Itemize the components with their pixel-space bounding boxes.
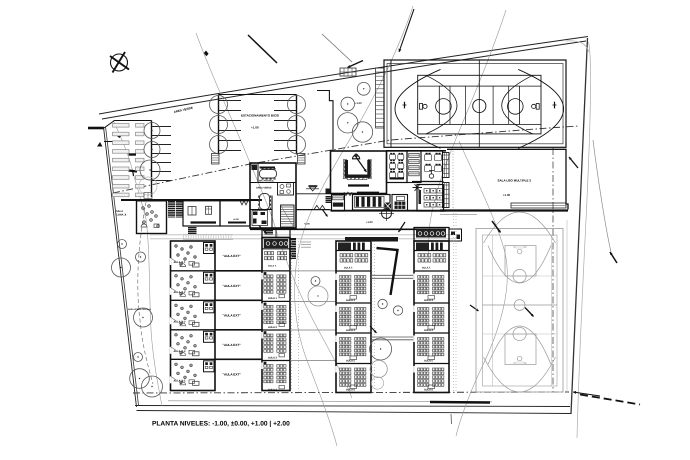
- svg-text:AULA T.: AULA T.: [268, 265, 277, 268]
- svg-text:AULA 6: AULA 6: [424, 388, 434, 391]
- svg-text:"AULA EXT": "AULA EXT": [223, 343, 242, 347]
- svg-text:AULA 6: AULA 6: [346, 388, 356, 391]
- svg-text:AULA 3: AULA 3: [268, 356, 278, 359]
- svg-text:+1.00: +1.00: [503, 193, 511, 197]
- svg-text:AULA JI-2: AULA JI-2: [174, 291, 186, 294]
- svg-text:AULA 1: AULA 1: [268, 297, 278, 300]
- svg-text:AULA JI-5: AULA JI-5: [174, 379, 186, 382]
- svg-text:AULA 5: AULA 5: [346, 359, 356, 362]
- svg-text:AREA VERDE CENTRAL: AREA VERDE CENTRAL: [128, 308, 152, 311]
- svg-text:"AULA EXT": "AULA EXT": [223, 284, 242, 288]
- svg-text:AULA JI-1: AULA JI-1: [174, 261, 186, 264]
- svg-text:AULA JI-3: AULA JI-3: [174, 320, 186, 323]
- svg-text:AULA T.: AULA T.: [422, 267, 431, 270]
- svg-text:ESTACIONAMIENTO BICIS: ESTACIONAMIENTO BICIS: [241, 114, 279, 118]
- svg-text:CUNA JI: CUNA JI: [116, 214, 127, 217]
- svg-text:AULA 4: AULA 4: [346, 329, 356, 332]
- svg-text:+1.00: +1.00: [233, 218, 239, 221]
- svg-text:AULA 3: AULA 3: [346, 299, 356, 302]
- svg-text:AULA 2: AULA 2: [268, 326, 278, 329]
- svg-text:AULA 4: AULA 4: [268, 388, 278, 391]
- svg-text:SALA USO MULTIPLE 2: SALA USO MULTIPLE 2: [498, 179, 532, 183]
- svg-text:+1.00: +1.00: [366, 221, 373, 224]
- svg-text:AULA 3: AULA 3: [424, 299, 434, 302]
- svg-text:+1.00: +1.00: [304, 223, 310, 226]
- svg-text:"AULA EXT": "AULA EXT": [223, 373, 242, 377]
- svg-text:AULA T.: AULA T.: [344, 267, 353, 270]
- svg-text:PLANTA NIVELES: -1.00, ±0.00,: PLANTA NIVELES: -1.00, ±0.00, +1.00 | +2…: [152, 421, 290, 428]
- svg-text:+1.00: +1.00: [251, 126, 259, 130]
- svg-text:AULA 4: AULA 4: [424, 329, 434, 332]
- svg-text:AULA JI-4: AULA JI-4: [174, 350, 186, 353]
- svg-text:WC PROFES.: WC PROFES.: [259, 180, 274, 183]
- svg-text:AULA 5: AULA 5: [424, 359, 434, 362]
- svg-text:"AULA EXT": "AULA EXT": [223, 314, 242, 318]
- svg-text:+1.00: +1.00: [355, 102, 362, 105]
- svg-text:"AULA EXT": "AULA EXT": [223, 254, 242, 258]
- svg-text:AREA VERDE: AREA VERDE: [256, 187, 272, 190]
